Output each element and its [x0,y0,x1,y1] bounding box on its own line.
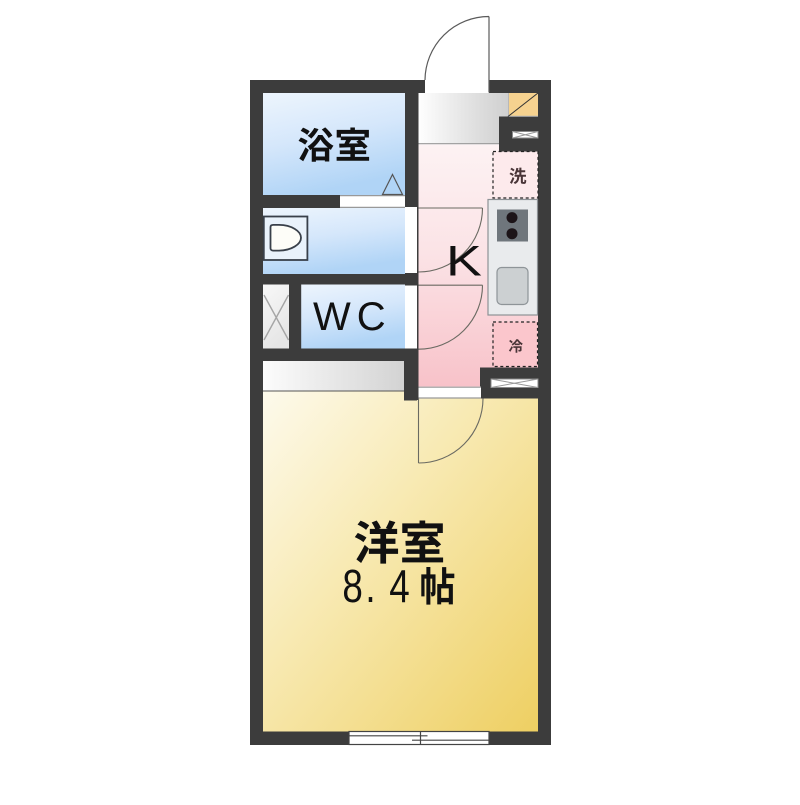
svg-text:K: K [446,238,482,286]
svg-text:4: 4 [389,560,409,612]
svg-text:8: 8 [342,560,362,612]
svg-text:WC: WC [313,295,392,339]
svg-text:.: . [365,560,375,612]
